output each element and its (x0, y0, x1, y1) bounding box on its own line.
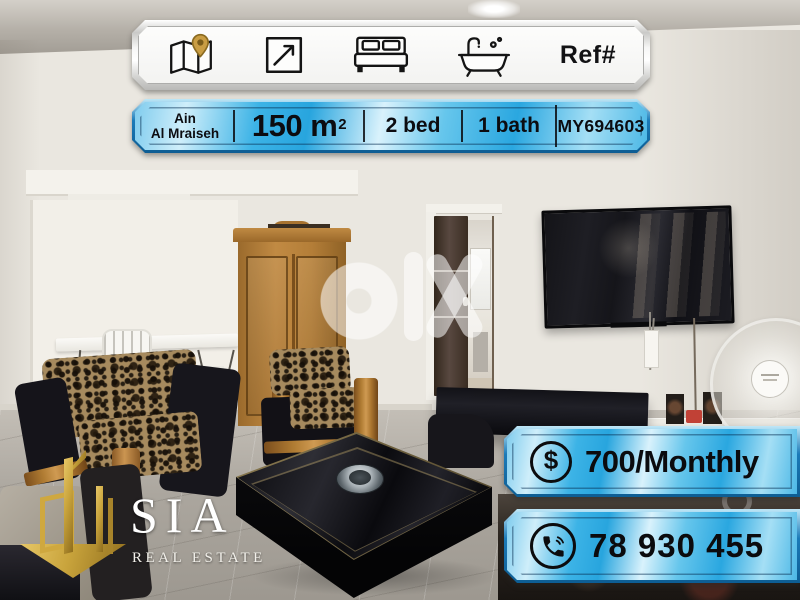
alcove-soffit (26, 170, 358, 196)
area-number: 150 m (252, 108, 337, 144)
phone-handset-glyph (540, 533, 567, 560)
area-exponent: 2 (338, 116, 346, 133)
agency-tagline: REAL ESTATE (132, 550, 266, 567)
sia-buildings-icon (18, 452, 130, 580)
details-row: Ain Al Mraiseh 150 m2 2 bed 1 bath MY694… (137, 104, 645, 148)
price-row: $ 700/Monthly (510, 432, 796, 491)
phone-icon (530, 523, 576, 569)
area-value: 150 m2 (235, 104, 363, 148)
dimensions-icon (263, 34, 305, 76)
location-line1: Ain (151, 111, 219, 126)
cable (649, 312, 651, 330)
reference-code: MY694603 (557, 104, 645, 148)
bed-icon (353, 34, 409, 76)
ref-label: Ref# (560, 41, 616, 70)
door-handle (463, 297, 468, 306)
power-strip (644, 330, 659, 368)
wall-tv-group (541, 205, 734, 328)
dollar-icon: $ (530, 441, 572, 483)
location-value: Ain Al Mraiseh (137, 104, 233, 148)
phone-row: 78 930 455 (510, 515, 796, 577)
logo-tower (64, 457, 73, 554)
agency-logo: SIA REAL ESTATE (18, 440, 268, 595)
door-frame (426, 204, 502, 214)
coffee-table (236, 432, 492, 598)
map-location-icon (166, 31, 216, 79)
tv-reflection (598, 217, 660, 279)
bathtub-icon (456, 32, 512, 78)
logo-tower (96, 486, 103, 552)
small-framed-item (666, 394, 684, 424)
open-door-leaf (434, 216, 468, 396)
features-banner: Ref# (132, 20, 650, 90)
bedrooms-value: 2 bed (365, 104, 461, 148)
red-object (686, 410, 702, 423)
chair-through-door (473, 332, 488, 372)
wardrobe-crown (233, 228, 351, 242)
location-line2: Al Mraiseh (151, 126, 219, 141)
ceiling-light (468, 0, 520, 18)
door-frame (492, 216, 499, 398)
bathrooms-value: 1 bath (463, 104, 555, 148)
price-value: 700/Monthly (585, 444, 759, 480)
phone-banner: 78 930 455 (504, 509, 800, 583)
window-through-door (470, 248, 491, 310)
ashtray-center (349, 470, 371, 485)
fan-hub-label (761, 374, 779, 376)
features-row: Ref# (140, 28, 642, 82)
logo-tower (108, 498, 113, 554)
details-banner: Ain Al Mraiseh 150 m2 2 bed 1 bath MY694… (132, 99, 650, 153)
agency-name: SIA (130, 486, 235, 544)
phone-number: 78 930 455 (589, 527, 764, 565)
fan-hub-label (763, 379, 777, 381)
price-banner: $ 700/Monthly (504, 426, 800, 497)
real-estate-listing-ad: Ref# Ain Al Mraiseh 150 m2 2 bed 1 bath … (0, 0, 800, 600)
